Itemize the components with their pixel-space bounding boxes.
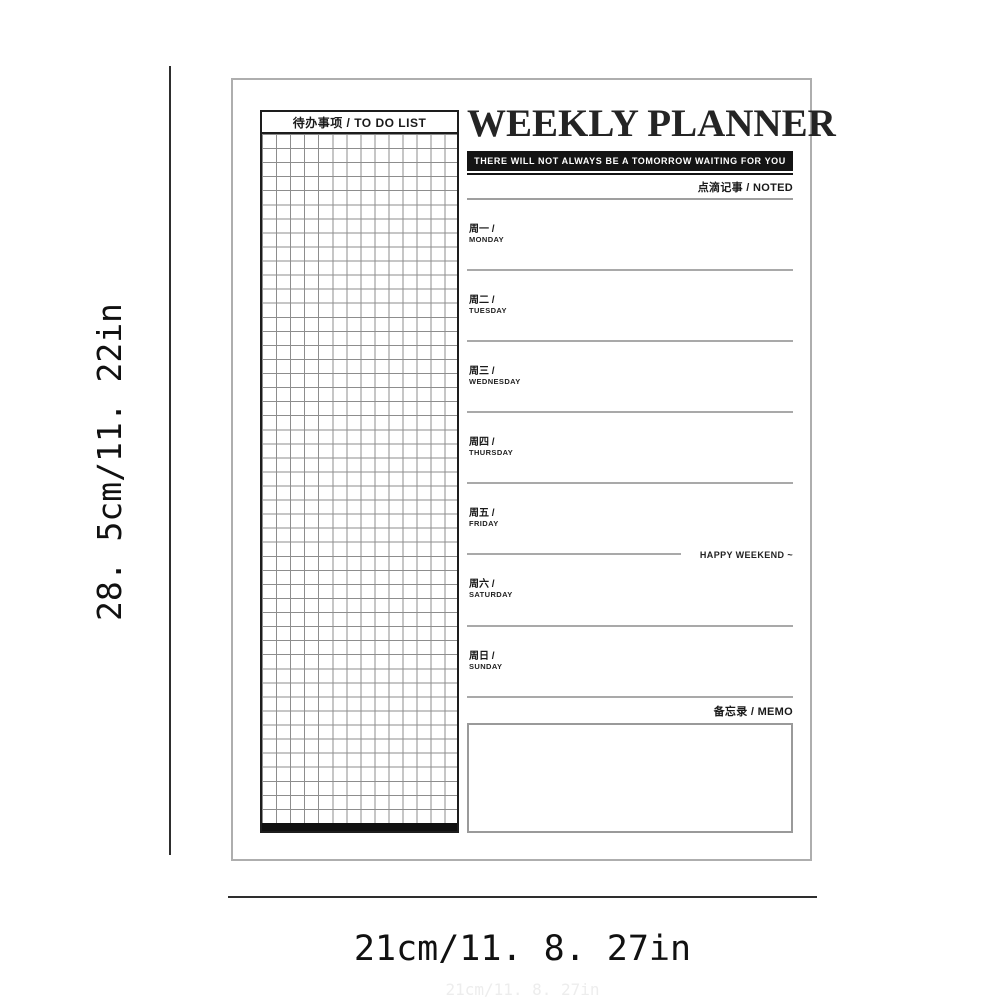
width-dimension-label: 21cm/11. 8. 27in [228, 929, 817, 969]
day-label: 周六 / SATURDAY [469, 579, 513, 599]
day-name-cn: 周五 / [469, 508, 499, 519]
day-name-cn: 周六 / [469, 579, 513, 590]
day-row-monday: 周一 / MONDAY [467, 200, 793, 271]
planner-tagline: THERE WILL NOT ALWAYS BE A TOMORROW WAIT… [467, 151, 793, 171]
height-dimension-line [169, 66, 171, 855]
day-label: 周三 / WEDNESDAY [469, 366, 521, 386]
planner-sheet: 待办事项 / TO DO LIST WEEKLY PLANNER THERE W… [231, 78, 812, 861]
day-row-saturday: 周六 / SATURDAY [467, 555, 793, 626]
day-label: 周四 / THURSDAY [469, 437, 513, 457]
tagline-underline [467, 173, 793, 175]
day-rule [467, 696, 793, 698]
day-row-wednesday: 周三 / WEDNESDAY [467, 342, 793, 413]
planner-main: WEEKLY PLANNER THERE WILL NOT ALWAYS BE … [467, 102, 793, 833]
day-row-thursday: 周四 / THURSDAY [467, 413, 793, 484]
day-label: 周五 / FRIDAY [469, 508, 499, 528]
todo-list-header: 待办事项 / TO DO LIST [262, 112, 457, 134]
day-name-en: TUESDAY [469, 306, 507, 315]
day-row-tuesday: 周二 / TUESDAY [467, 271, 793, 342]
memo-box [467, 723, 793, 833]
day-name-cn: 周一 / [469, 224, 504, 235]
width-dimension-label-faint: 21cm/11. 8. 27in [228, 980, 817, 999]
day-label: 周一 / MONDAY [469, 224, 504, 244]
day-name-en: THURSDAY [469, 448, 513, 457]
product-image: 28. 5cm/11. 22in 21cm/11. 8. 27in 21cm/1… [0, 0, 1001, 1001]
day-name-cn: 周三 / [469, 366, 521, 377]
day-name-en: MONDAY [469, 235, 504, 244]
day-label: 周二 / TUESDAY [469, 295, 507, 315]
height-dimension-label: 28. 5cm/11. 22in [90, 282, 134, 642]
todo-bottom-bar [262, 823, 457, 831]
day-name-en: SUNDAY [469, 662, 502, 671]
day-name-en: FRIDAY [469, 519, 499, 528]
day-name-cn: 周二 / [469, 295, 507, 306]
todo-grid [262, 134, 457, 823]
memo-section-label: 备忘录 / MEMO [467, 705, 793, 719]
day-name-en: WEDNESDAY [469, 377, 521, 386]
planner-title: WEEKLY PLANNER [467, 102, 793, 146]
day-name-cn: 周四 / [469, 437, 513, 448]
day-name-cn: 周日 / [469, 651, 502, 662]
day-row-friday: 周五 / FRIDAY HAPPY WEEKEND ~ [467, 484, 793, 555]
day-name-en: SATURDAY [469, 590, 513, 599]
todo-list-panel: 待办事项 / TO DO LIST [260, 110, 459, 833]
noted-section-label: 点滴记事 / NOTED [467, 180, 793, 200]
width-dimension-line [228, 896, 817, 898]
day-rows: 周一 / MONDAY 周二 / TUESDAY 周三 / WEDNES [467, 200, 793, 698]
day-row-sunday: 周日 / SUNDAY [467, 627, 793, 698]
day-label: 周日 / SUNDAY [469, 651, 502, 671]
